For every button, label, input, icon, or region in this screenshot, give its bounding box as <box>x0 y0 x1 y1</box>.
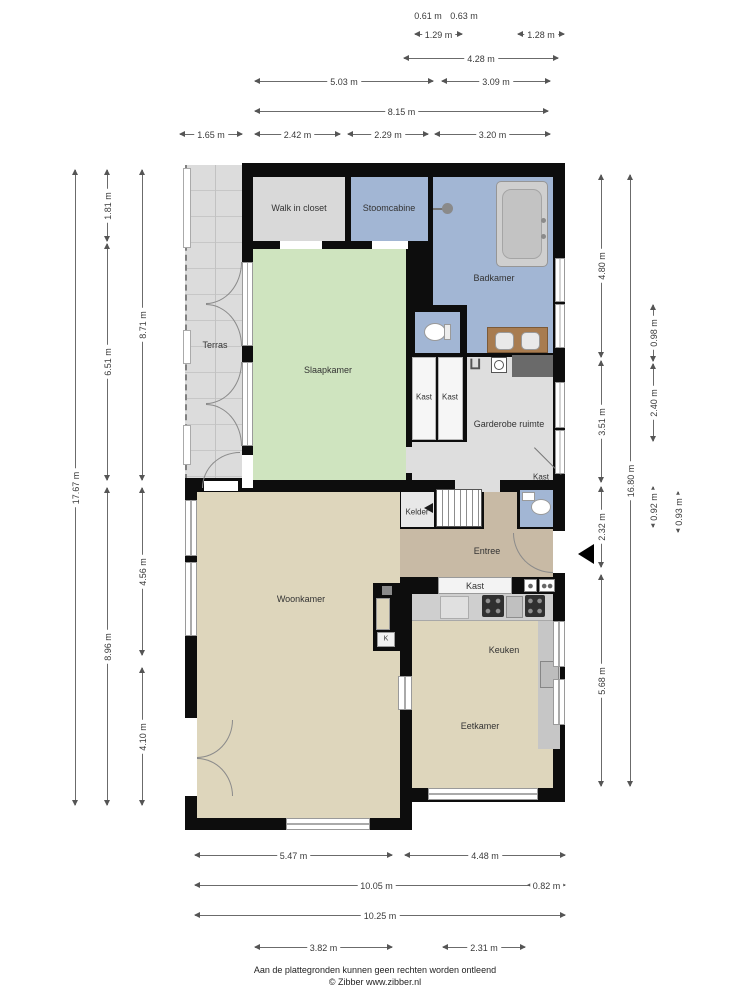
terras-post <box>183 168 191 248</box>
window-icon <box>185 500 197 556</box>
front-door-opening <box>553 531 565 573</box>
dimension-4-56-m: 4.56 m <box>142 488 143 655</box>
chimney-vent <box>382 586 392 595</box>
label-slaapkamer: Slaapkamer <box>304 365 352 375</box>
dim-arrow-icon <box>559 31 565 37</box>
dimension-1-81-m: 1.81 m <box>107 170 108 241</box>
dim-label: 4.56 m <box>138 555 148 589</box>
fixture-icon <box>524 579 537 592</box>
dimension-10-25-m: 10.25 m <box>195 915 565 916</box>
dimension-8-71-m: 8.71 m <box>142 170 143 480</box>
dim-label: 3.51 m <box>597 405 607 439</box>
dim-arrow-icon <box>650 356 656 362</box>
dimension-3-09-m: 3.09 m <box>442 81 550 82</box>
label-kast-1: Kast <box>416 393 432 402</box>
label-kast-4: Kast <box>466 581 484 591</box>
label-stoomcabine: Stoomcabine <box>363 203 416 213</box>
dim-label: 8.15 m <box>385 107 419 117</box>
label-badkamer: Badkamer <box>473 273 514 283</box>
garderobe-counter <box>512 355 553 377</box>
steamroom-door-opening <box>372 241 408 249</box>
dim-label: 1.65 m <box>194 130 228 140</box>
dim-arrow-icon <box>598 574 604 580</box>
bathtub-faucet <box>541 234 546 239</box>
dimension-1-29-m: 1.29 m <box>415 34 462 35</box>
dim-arrow-icon <box>545 78 551 84</box>
dim-arrow-icon <box>139 487 145 493</box>
window-icon <box>428 788 538 800</box>
dim-label: 2.31 m <box>467 943 501 953</box>
sink-icon <box>521 332 540 350</box>
dim-arrow-icon <box>254 131 260 137</box>
dim-arrow-icon <box>387 852 393 858</box>
dim-label: 0.63 m <box>447 11 481 21</box>
dim-arrow-icon <box>139 800 145 806</box>
footer-line-1: Aan de plattegronden kunnen geen rechten… <box>20 964 730 976</box>
label-kast-k: K <box>384 636 389 643</box>
dim-arrow-icon <box>404 852 410 858</box>
wc-wall <box>409 305 467 312</box>
dim-arrow-icon <box>194 912 200 918</box>
stove-icon <box>482 595 504 617</box>
dim-label: 2.42 m <box>281 130 315 140</box>
dim-label: 2.32 m <box>597 510 607 544</box>
dimension-4-28-m: 4.28 m <box>404 58 558 59</box>
label-eetkamer: Eetkamer <box>461 721 500 731</box>
window-icon <box>555 382 565 428</box>
label-kast-3: Kast <box>533 473 549 482</box>
dim-label: 5.47 m <box>277 851 311 861</box>
dim-label: 10.05 m <box>357 881 396 891</box>
dim-arrow-icon <box>598 174 604 180</box>
dim-label: 0.93 m <box>674 495 684 529</box>
dimension-2-42-m: 2.42 m <box>255 134 340 135</box>
dim-arrow-icon <box>598 360 604 366</box>
dim-arrow-icon <box>104 243 110 249</box>
dim-arrow-icon <box>139 667 145 673</box>
dim-arrow-icon <box>179 131 185 137</box>
dim-label: 2.40 m <box>649 386 659 420</box>
dimension-3-51-m: 3.51 m <box>601 361 602 482</box>
dim-arrow-icon <box>627 781 633 787</box>
label-keuken: Keuken <box>489 645 520 655</box>
room-woonkamer <box>197 492 400 818</box>
dim-arrow-icon <box>520 944 526 950</box>
dim-label: 4.10 m <box>138 720 148 754</box>
dim-label: 1.29 m <box>422 30 456 40</box>
dim-arrow-icon <box>254 944 260 950</box>
vanity-counter <box>487 327 548 353</box>
dimension-5-03-m: 5.03 m <box>255 81 433 82</box>
entrance-arrow-icon <box>578 544 594 564</box>
dimension-2-29-m: 2.29 m <box>348 134 428 135</box>
window-icon <box>553 679 565 725</box>
dim-label: 3.09 m <box>479 77 513 87</box>
dim-label: 16.80 m <box>626 461 636 500</box>
terras-post <box>183 425 191 465</box>
dim-arrow-icon <box>72 800 78 806</box>
laundry-basket-icon: ⊔ <box>469 354 481 374</box>
window-icon <box>555 304 565 348</box>
entree-upper-arm <box>484 492 517 529</box>
bathtub-icon <box>496 181 548 267</box>
dim-label: 5.68 m <box>597 664 607 698</box>
label-woonkamer: Woonkamer <box>277 594 325 604</box>
dimension-0-82-m: 0.82 m <box>528 885 565 886</box>
dim-label: 1.28 m <box>524 30 558 40</box>
dim-arrow-icon <box>627 174 633 180</box>
dim-arrow-icon <box>543 108 549 114</box>
dim-arrow-icon <box>598 486 604 492</box>
french-door-opening <box>185 718 197 796</box>
dim-arrow-icon <box>387 944 393 950</box>
sink-icon <box>495 332 514 350</box>
dim-arrow-icon <box>254 78 260 84</box>
dimension-8-15-m: 8.15 m <box>255 111 548 112</box>
dim-arrow-icon <box>560 912 566 918</box>
dim-arrow-icon <box>104 169 110 175</box>
dim-label: 6.51 m <box>103 345 113 379</box>
terras-post <box>183 330 191 364</box>
kitchen-sink-icon <box>506 596 523 618</box>
dimension-0-98-m: 0.98 m <box>653 305 654 361</box>
dim-label: 0.92 m <box>649 490 659 524</box>
dim-label: 5.03 m <box>327 77 361 87</box>
fireplace-niche <box>376 598 390 630</box>
dim-label: 17.67 m <box>71 468 81 507</box>
terrace-door-opening <box>242 455 253 488</box>
sink-icon <box>522 492 535 501</box>
room-keuken-eetkamer <box>412 594 553 788</box>
fixture-icon <box>539 579 555 592</box>
dim-arrow-icon <box>237 131 243 137</box>
bathtub-faucet <box>541 218 546 223</box>
footer-line-2: © Zibber www.zibber.nl <box>20 976 730 988</box>
toilet-icon <box>531 499 551 515</box>
dim-label: 8.96 m <box>103 630 113 664</box>
floorplan-canvas: ⊔ <box>0 0 750 1000</box>
toilet-icon <box>424 323 446 341</box>
label-entree: Entree <box>474 546 501 556</box>
dim-arrow-icon <box>104 800 110 806</box>
terrace-bottom-door-opening <box>204 481 238 491</box>
slaapkamer-door-opening <box>406 447 412 473</box>
dim-arrow-icon <box>650 304 656 310</box>
dim-arrow-icon <box>194 882 200 888</box>
label-kast-2: Kast <box>442 393 458 402</box>
dimension-2-40-m: 2.40 m <box>653 364 654 441</box>
dim-label: 4.28 m <box>464 54 498 64</box>
dim-arrow-icon <box>598 477 604 483</box>
dim-arrow-icon <box>347 131 353 137</box>
dim-arrow-icon <box>194 852 200 858</box>
window-icon <box>286 818 370 830</box>
dim-arrow-icon <box>423 131 429 137</box>
dim-label: 3.82 m <box>307 943 341 953</box>
toilet-icon <box>444 324 451 340</box>
window-icon <box>555 430 565 474</box>
dim-arrow-icon <box>139 169 145 175</box>
dim-arrow-icon <box>139 475 145 481</box>
dimension-2-32-m: 2.32 m <box>601 487 602 567</box>
stairs-icon <box>436 489 482 527</box>
dimension-5-47-m: 5.47 m <box>195 855 392 856</box>
dimension-8-96-m: 8.96 m <box>107 488 108 805</box>
dim-arrow-icon <box>254 108 260 114</box>
dim-arrow-icon <box>441 78 447 84</box>
window-icon <box>398 676 412 710</box>
dim-arrow-icon <box>650 436 656 442</box>
dimension-1-28-m: 1.28 m <box>518 34 564 35</box>
label-kelder: Kelder <box>405 508 428 517</box>
dim-label: 3.20 m <box>476 130 510 140</box>
dimension-1-65-m: 1.65 m <box>180 134 242 135</box>
dimension-0-92-m: 0.92 m <box>653 487 654 527</box>
shower-head-icon <box>442 203 453 214</box>
window-icon <box>555 258 565 302</box>
window-icon <box>553 621 565 667</box>
dimension-4-80-m: 4.80 m <box>601 175 602 357</box>
dim-arrow-icon <box>403 55 409 61</box>
dim-arrow-icon <box>650 363 656 369</box>
dimension-2-31-m: 2.31 m <box>443 947 525 948</box>
dim-arrow-icon <box>598 352 604 358</box>
dim-arrow-icon <box>104 487 110 493</box>
dimension-0-93-m: 0.93 m <box>678 492 679 532</box>
dim-arrow-icon <box>517 31 523 37</box>
closet-door-opening <box>280 241 322 249</box>
dim-arrow-icon <box>104 475 110 481</box>
dim-label: 0.98 m <box>649 316 659 350</box>
dimension-5-68-m: 5.68 m <box>601 575 602 786</box>
dim-arrow-icon <box>457 31 463 37</box>
dim-arrow-icon <box>428 78 434 84</box>
washing-machine-icon <box>491 357 507 373</box>
dimension-3-20-m: 3.20 m <box>435 134 550 135</box>
dim-arrow-icon <box>139 650 145 656</box>
dimension-10-05-m: 10.05 m <box>195 885 558 886</box>
footer-disclaimer: Aan de plattegronden kunnen geen rechten… <box>20 964 730 988</box>
dim-arrow-icon <box>72 169 78 175</box>
dimension-3-82-m: 3.82 m <box>255 947 392 948</box>
dim-arrow-icon <box>545 131 551 137</box>
dim-label: 4.48 m <box>468 851 502 861</box>
kitchen-cabinet <box>440 596 469 619</box>
dim-arrow-icon <box>414 31 420 37</box>
label-terras: Terras <box>202 340 227 350</box>
dim-label: 0.82 m <box>530 881 564 891</box>
dim-label: 10.25 m <box>361 911 400 921</box>
bathtub-basin <box>502 189 542 259</box>
dimension-6-51-m: 6.51 m <box>107 244 108 480</box>
dimension-4-48-m: 4.48 m <box>405 855 565 856</box>
dim-arrow-icon <box>598 781 604 787</box>
dim-label: 8.71 m <box>138 308 148 342</box>
dim-arrow-icon <box>598 562 604 568</box>
room-garderobe-arm <box>412 442 467 480</box>
dim-arrow-icon <box>434 131 440 137</box>
window-icon <box>185 562 197 636</box>
terrace-door-window <box>242 262 253 346</box>
dim-label: 0.61 m <box>411 11 445 21</box>
dim-arrow-icon <box>553 55 559 61</box>
wc-wall <box>460 312 467 353</box>
dim-label: 4.80 m <box>597 249 607 283</box>
label-garderobe: Garderobe ruimte <box>474 419 545 429</box>
dim-arrow-icon <box>104 236 110 242</box>
terrace-door-window <box>242 362 253 446</box>
stove-icon <box>525 595 545 617</box>
dimension-16-80-m: 16.80 m <box>630 175 631 786</box>
dim-arrow-icon <box>560 852 566 858</box>
dim-arrow-icon <box>442 944 448 950</box>
dimension-4-10-m: 4.10 m <box>142 668 143 805</box>
dim-label: 1.81 m <box>103 189 113 223</box>
dimension-17-67-m: 17.67 m <box>75 170 76 805</box>
dim-label: 2.29 m <box>371 130 405 140</box>
dim-arrow-icon <box>335 131 341 137</box>
label-walk-in-closet: Walk in closet <box>271 203 326 213</box>
